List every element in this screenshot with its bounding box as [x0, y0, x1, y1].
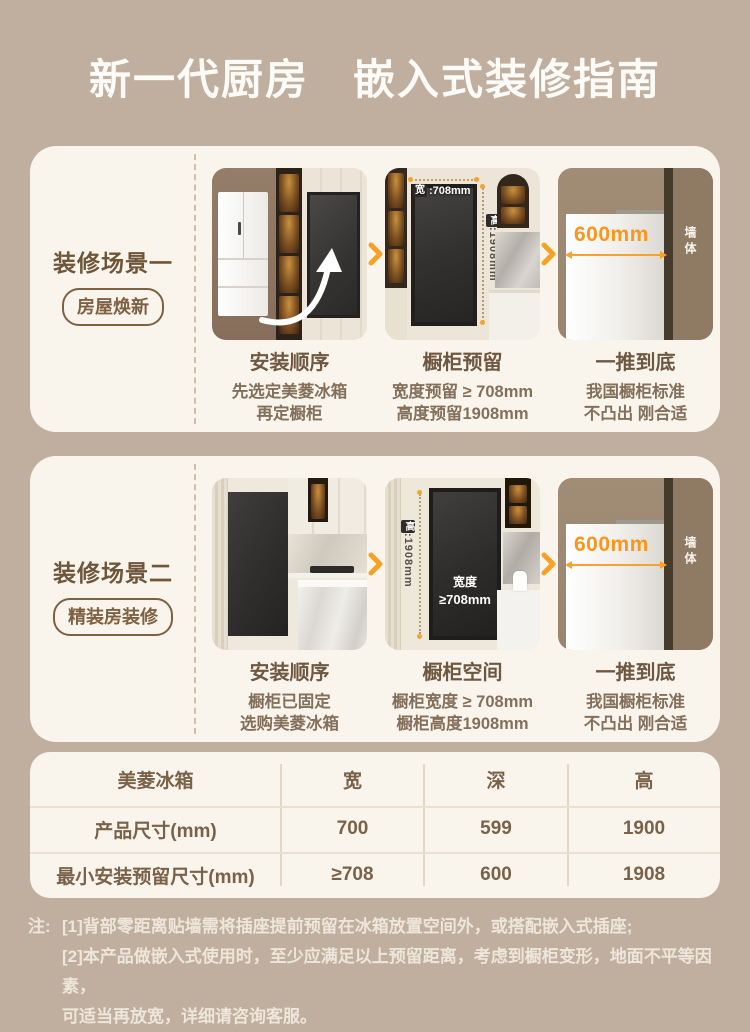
- table-header-product: 美菱冰箱: [30, 752, 281, 806]
- marble-island: [298, 580, 367, 650]
- island-counter: [497, 590, 540, 650]
- next-step-chevron-icon: [367, 242, 385, 266]
- spec-table: 美菱冰箱 宽 深 高 产品尺寸(mm) 700 599 1900 最小安装预留尺…: [30, 752, 720, 898]
- curved-arrow-icon: [254, 246, 364, 338]
- table-divider: [567, 764, 569, 886]
- fitted-kitchen-photo: [212, 478, 367, 650]
- install-order-photo: [212, 168, 367, 340]
- table-header-depth: 深: [424, 752, 568, 806]
- arrow-right-icon: [660, 561, 667, 569]
- next-step-chevron-icon: [540, 552, 558, 576]
- page-title: 新一代厨房 嵌入式装修指南: [0, 46, 750, 107]
- depth-dimension-label: 600mm: [574, 223, 649, 247]
- table-cell: 700: [281, 806, 424, 852]
- ribbed-panel: [212, 478, 228, 650]
- wall-label: 墙体: [682, 536, 699, 568]
- scenario-card-1: 装修场景一 房屋焕新: [30, 146, 720, 432]
- step-caption: 安装顺序 橱柜已固定 选购美菱冰箱: [212, 656, 367, 735]
- step-caption: 一推到底 我国橱柜标准 不凸出 刚合适: [558, 656, 713, 735]
- scene-2-badge: 精装房装修: [53, 598, 173, 636]
- step-caption: 橱柜预留 宽度预留 ≥ 708mm 高度预留1908mm: [385, 346, 540, 425]
- marble-backsplash: [495, 232, 540, 288]
- dashed-divider: [194, 464, 196, 734]
- height-measure-line: [482, 188, 484, 322]
- cabinet-recess: [228, 492, 288, 636]
- table-header-width: 宽: [281, 752, 424, 806]
- arrow-left-icon: [565, 251, 572, 259]
- footnotes: 注: [1]背部零距离贴墙需将插座提前预留在冰箱放置空间外，或搭配嵌入式插座; …: [28, 912, 728, 1032]
- table-row-label: 最小安装预留尺寸(mm): [30, 852, 281, 898]
- scene-1-title: 装修场景一: [30, 244, 196, 278]
- depth-measure-line: [570, 254, 662, 256]
- height-dimension-label: 高:1908mm: [401, 520, 415, 588]
- display-niche: [505, 478, 531, 528]
- width-dimension-label: 宽:708mm: [413, 185, 471, 197]
- footnote-line: [1]背部零距离贴墙需将插座提前预留在冰箱放置空间外，或搭配嵌入式插座;: [62, 912, 728, 942]
- arrow-left-icon: [565, 561, 572, 569]
- footnote-lines: [1]背部零距离贴墙需将插座提前预留在冰箱放置空间外，或搭配嵌入式插座; [2]…: [62, 912, 728, 1032]
- step-caption: 安装顺序 先选定美菱冰箱 再定橱柜: [212, 346, 367, 425]
- scene-1-badge: 房屋焕新: [62, 288, 164, 326]
- table-cell: 1900: [568, 806, 720, 852]
- footnote-line: 可适当再放宽，详细请咨询客服。: [62, 1002, 728, 1032]
- table-header-height: 高: [568, 752, 720, 806]
- scene-2-captions: 安装顺序 橱柜已固定 选购美菱冰箱 橱柜空间 橱柜宽度 ≥ 708mm 橱柜高度…: [212, 656, 713, 735]
- scenario-card-2: 装修场景二 精装房装修 高:1908mm: [30, 456, 720, 742]
- next-step-chevron-icon: [367, 552, 385, 576]
- height-measure-line: [419, 494, 421, 634]
- stove: [310, 566, 354, 573]
- top-view-photo: 墙体 600mm: [558, 478, 713, 650]
- dashed-divider: [194, 154, 196, 424]
- arched-niche: [497, 174, 529, 228]
- cabinet-reserve-photo: 宽:708mm 高:1908mm: [385, 168, 540, 340]
- scene-1-captions: 安装顺序 先选定美菱冰箱 再定橱柜 橱柜预留 宽度预留 ≥ 708mm 高度预留…: [212, 346, 713, 425]
- cabinet-recess: [429, 488, 501, 640]
- wall-label: 墙体: [682, 226, 699, 258]
- table-cell: ≥708: [281, 852, 424, 898]
- scene-2-label-block: 装修场景二 精装房装修: [30, 554, 196, 636]
- table-cell: 599: [424, 806, 568, 852]
- table-cell: 1908: [568, 852, 720, 898]
- depth-measure-line: [570, 564, 662, 566]
- width-dimension-label: 宽度 ≥708mm: [429, 574, 501, 609]
- kitchen-counter: [489, 290, 540, 340]
- scene-1-label-block: 装修场景一 房屋焕新: [30, 244, 196, 326]
- depth-dimension-label: 600mm: [574, 533, 649, 557]
- table-divider: [280, 764, 282, 886]
- water-jug: [513, 571, 527, 591]
- step-caption: 一推到底 我国橱柜标准 不凸出 刚合适: [558, 346, 713, 425]
- scene-2-steps-row: 高:1908mm 宽度 ≥708mm 墙体 600mm: [212, 478, 713, 650]
- footnote-line: [2]本产品做嵌入式使用时，至少应满足以上预留距离，考虑到橱柜变形，地面不平等因…: [62, 942, 728, 1002]
- display-niche: [308, 478, 328, 522]
- table-row-label: 产品尺寸(mm): [30, 806, 281, 852]
- width-measure-line: [411, 179, 477, 181]
- table-cell: 600: [424, 852, 568, 898]
- ribbed-panel: [385, 478, 401, 650]
- cabinet-recess: [411, 184, 477, 326]
- table-divider: [423, 764, 425, 886]
- table-divider: [30, 852, 720, 854]
- footnote-prefix: 注:: [28, 912, 62, 1032]
- cabinet-space-photo: 高:1908mm 宽度 ≥708mm: [385, 478, 540, 650]
- wine-shelf: [385, 168, 407, 288]
- table-divider: [30, 806, 720, 808]
- scene-1-steps-row: 宽:708mm 高:1908mm 墙体: [212, 168, 713, 340]
- next-step-chevron-icon: [540, 242, 558, 266]
- scene-2-title: 装修场景二: [30, 554, 196, 588]
- top-view-photo: 墙体 600mm: [558, 168, 713, 340]
- step-caption: 橱柜空间 橱柜宽度 ≥ 708mm 橱柜高度1908mm: [385, 656, 540, 735]
- arrow-right-icon: [660, 251, 667, 259]
